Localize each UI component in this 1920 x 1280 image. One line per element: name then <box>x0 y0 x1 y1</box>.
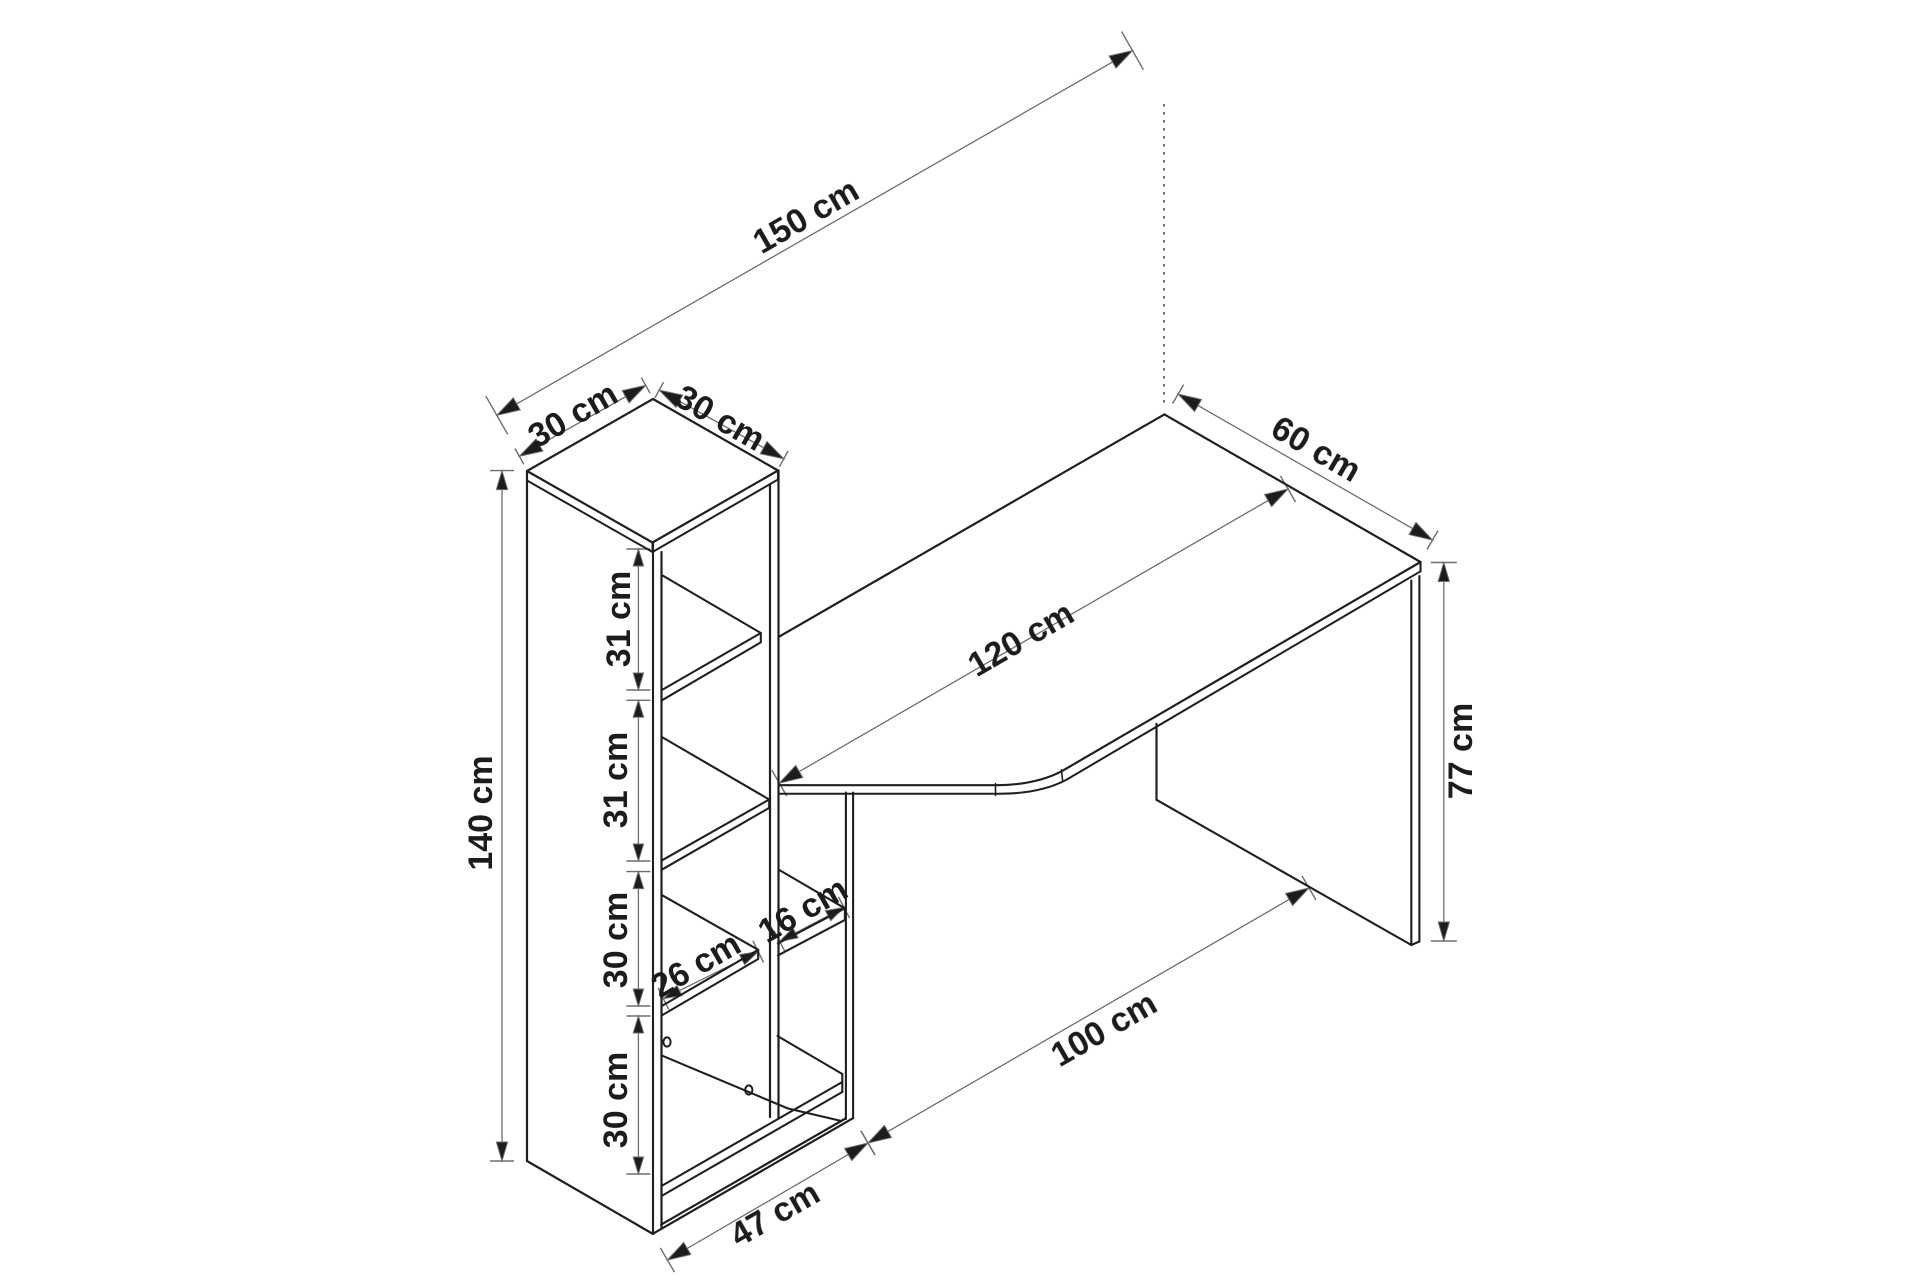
svg-text:30 cm: 30 cm <box>597 892 635 988</box>
svg-text:31 cm: 31 cm <box>600 571 638 667</box>
svg-text:140 cm: 140 cm <box>462 755 500 870</box>
svg-text:77 cm: 77 cm <box>1442 703 1480 799</box>
svg-text:31 cm: 31 cm <box>597 732 635 828</box>
svg-text:30 cm: 30 cm <box>597 1052 635 1148</box>
